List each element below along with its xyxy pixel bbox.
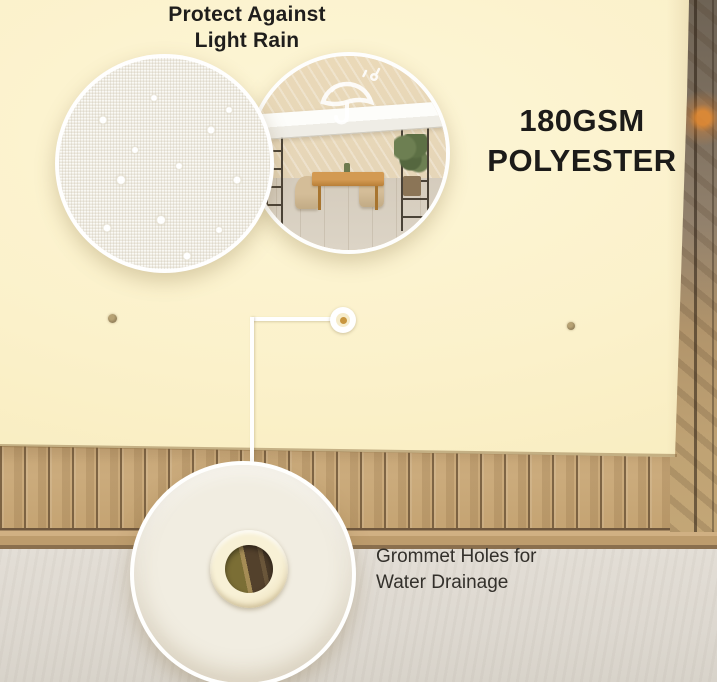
potted-plant: [394, 134, 427, 181]
grommet-hole-dot-right: [567, 322, 575, 330]
product-infographic: Protect Against Light Rain 180GSM POLYES…: [0, 0, 717, 682]
dining-table: [312, 172, 384, 186]
fabric-closeup-circle: [55, 54, 274, 273]
connector-line-horizontal: [252, 317, 334, 321]
connector-line-vertical: [250, 317, 254, 475]
plant-pot: [403, 176, 420, 195]
grommet-point-marker: [330, 307, 356, 333]
callout-grommet-line2: Water Drainage: [376, 570, 606, 596]
callout-light-rain-line1: Protect Against: [147, 2, 347, 28]
callout-grommet-holes: Grommet Holes for Water Drainage: [376, 544, 606, 595]
spec-line2: POLYESTER: [468, 141, 696, 181]
callout-light-rain-line2: Light Rain: [147, 28, 347, 54]
wood-rail: [0, 528, 717, 549]
concrete-floor: [0, 549, 717, 682]
spec-line1: 180GSM: [468, 101, 696, 141]
gazebo-scene-circle: [248, 52, 450, 254]
grommet-ring: [210, 530, 288, 608]
grommet-hole: [225, 545, 273, 593]
callout-grommet-line1: Grommet Holes for: [376, 544, 606, 570]
grommet-hole-dot-left: [108, 314, 117, 323]
water-droplets: [59, 58, 270, 269]
spec-180gsm-polyester: 180GSM POLYESTER: [468, 101, 696, 180]
grommet-closeup-circle: [130, 461, 356, 682]
callout-light-rain: Protect Against Light Rain: [147, 2, 347, 53]
umbrella-rain-icon: [310, 62, 390, 142]
